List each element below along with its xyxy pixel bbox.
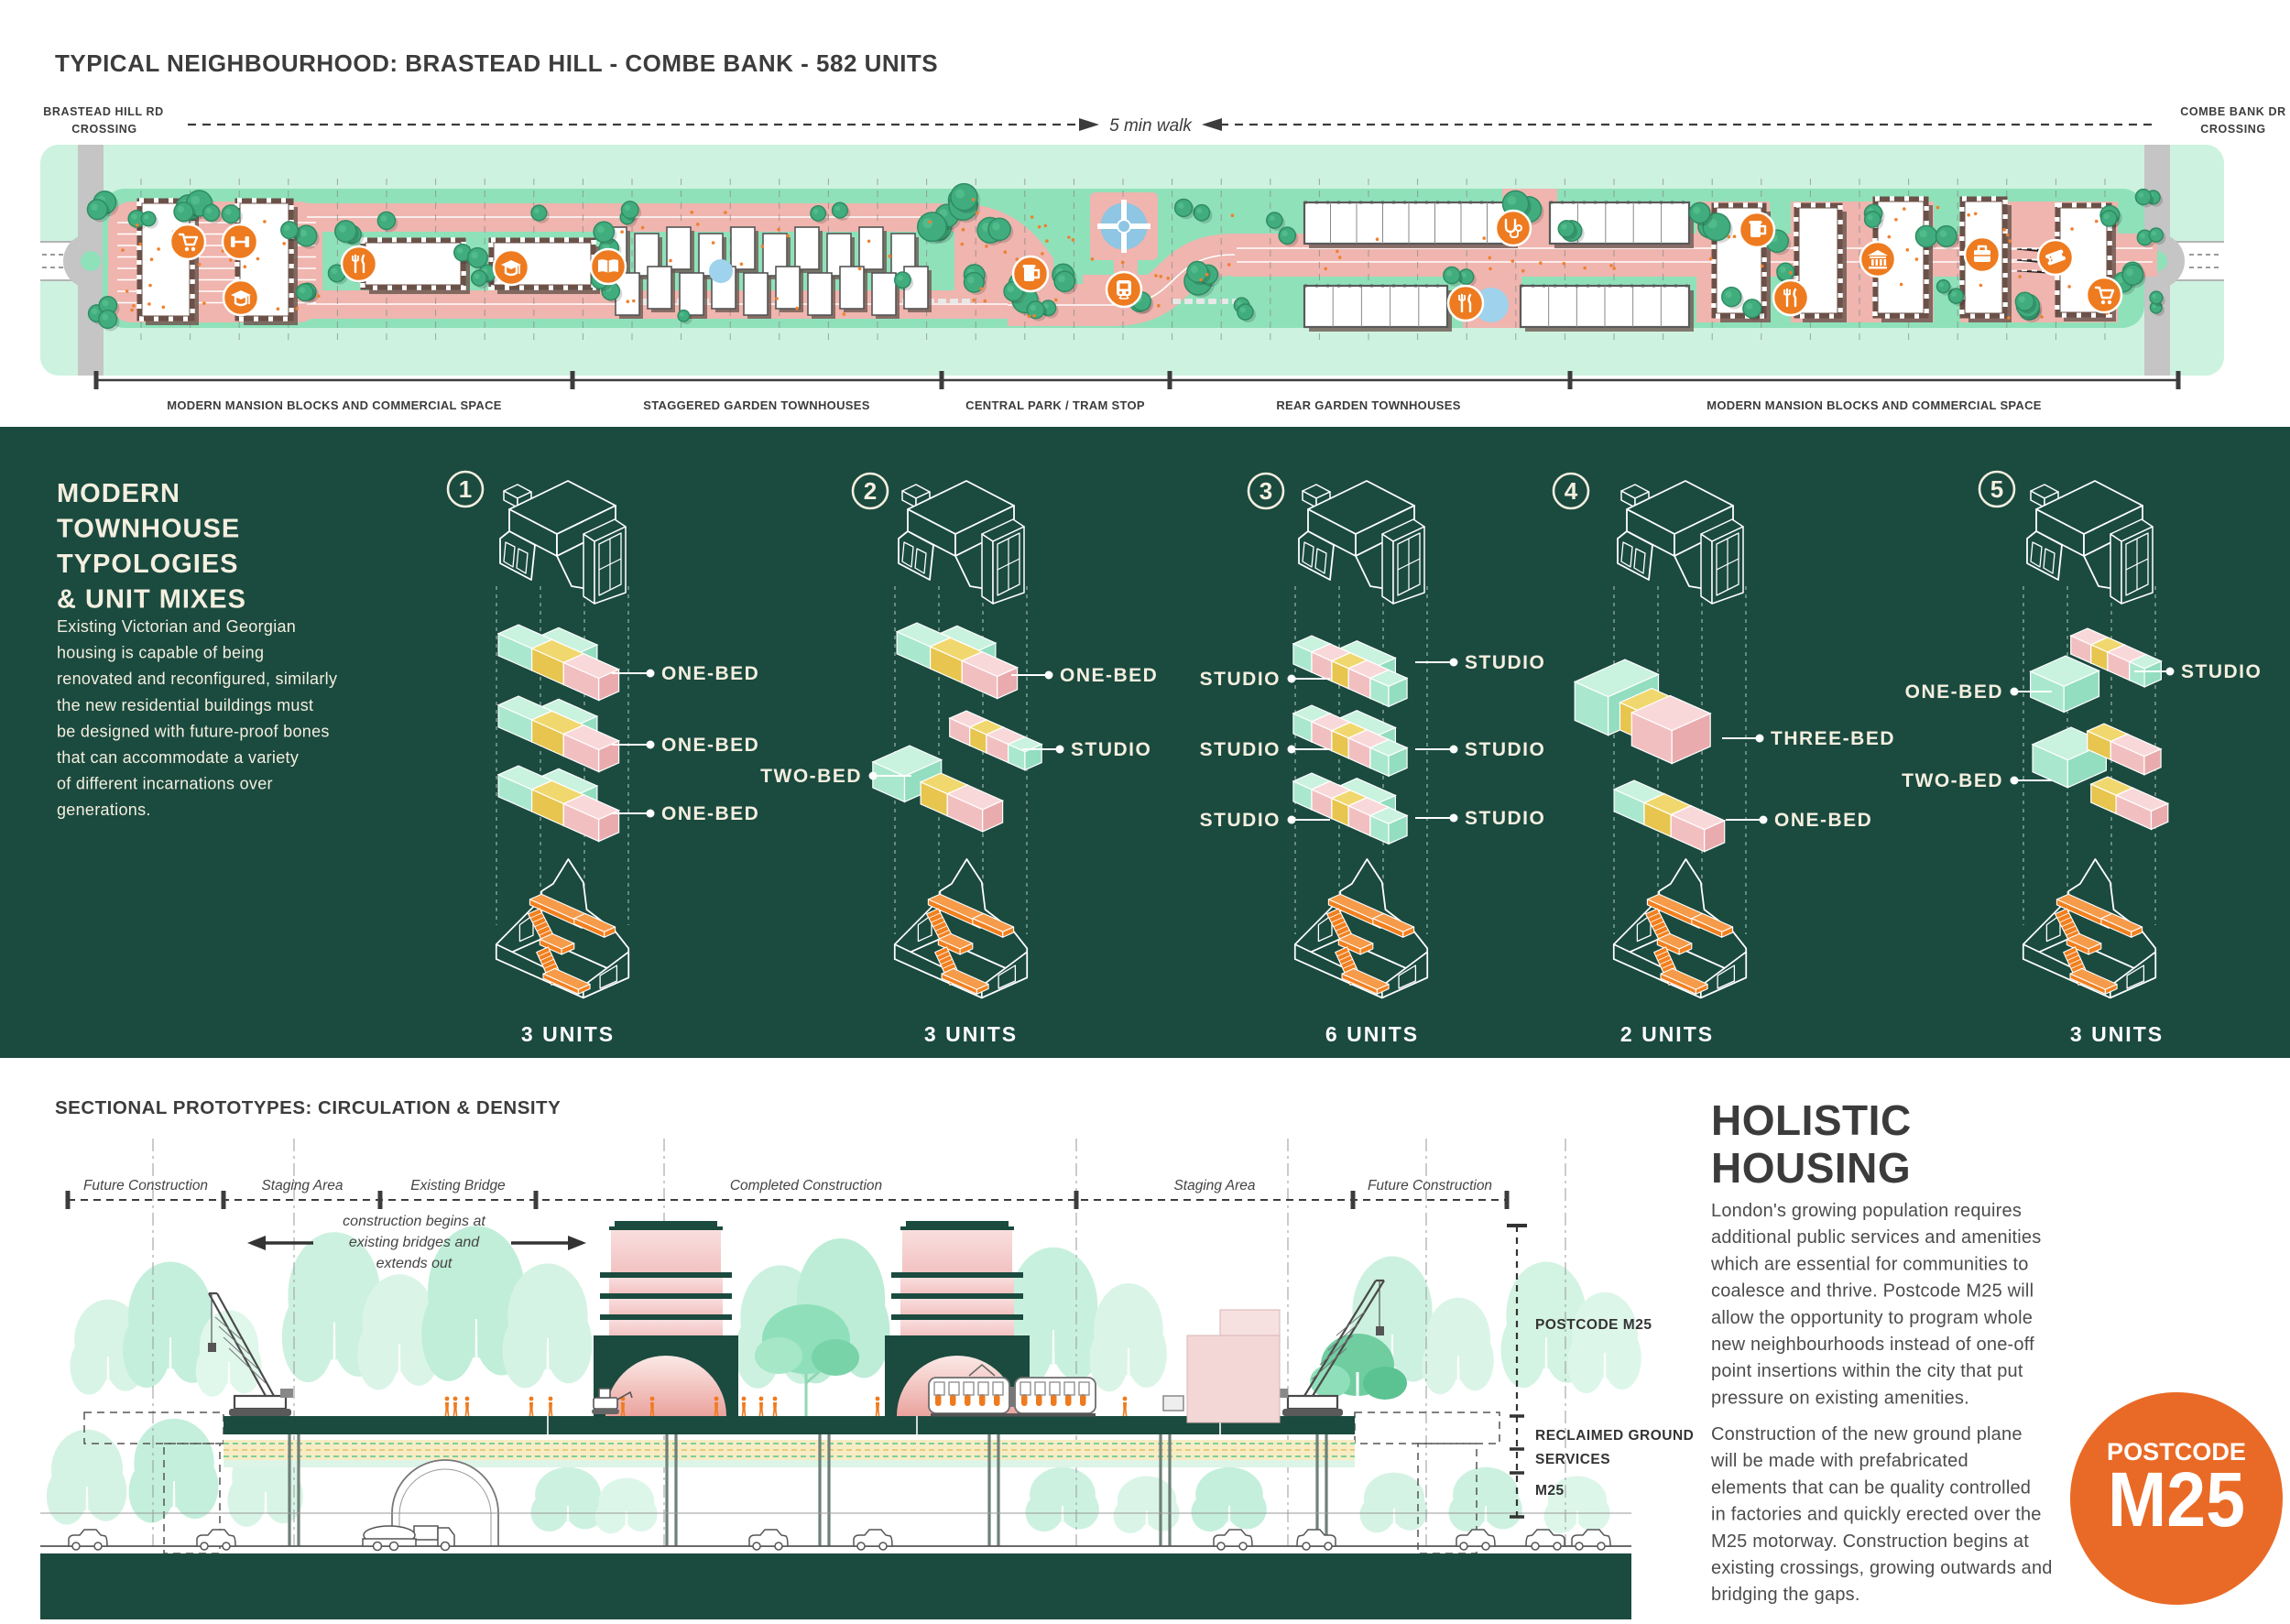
svg-text:STUDIO: STUDIO [1200, 739, 1281, 760]
svg-text:that can accommodate a variety: that can accommodate a variety [57, 748, 299, 767]
svg-text:Completed Construction: Completed Construction [730, 1178, 882, 1193]
svg-text:HOUSING: HOUSING [1711, 1144, 1911, 1192]
svg-text:STUDIO: STUDIO [1200, 810, 1281, 831]
svg-text:CROSSING: CROSSING [2200, 123, 2265, 136]
svg-text:existing crossings, growing ou: existing crossings, growing outwards and [1711, 1558, 2053, 1578]
svg-text:BRASTEAD HILL RD: BRASTEAD HILL RD [43, 105, 164, 118]
svg-text:renovated and reconfigured, si: renovated and reconfigured, similarly [57, 670, 337, 688]
svg-text:5: 5 [1990, 475, 2003, 503]
svg-text:existing bridges and: existing bridges and [349, 1235, 480, 1250]
svg-text:2: 2 [864, 477, 877, 505]
svg-text:CROSSING: CROSSING [71, 123, 136, 136]
svg-text:additional public services and: additional public services and amenities [1711, 1227, 2041, 1248]
svg-text:STUDIO: STUDIO [1465, 652, 1545, 673]
svg-text:5 min walk: 5 min walk [1109, 116, 1193, 136]
svg-text:generations.: generations. [57, 801, 151, 819]
svg-text:of different incarnations over: of different incarnations over [57, 775, 273, 793]
svg-text:TYPICAL NEIGHBOURHOOD: BRASTEA: TYPICAL NEIGHBOURHOOD: BRASTEAD HILL - C… [55, 49, 938, 77]
svg-text:6 UNITS: 6 UNITS [1325, 1022, 1419, 1046]
svg-text:housing is capable of being: housing is capable of being [57, 644, 264, 662]
svg-text:point insertions within the ci: point insertions within the city that pu… [1711, 1361, 2023, 1381]
svg-text:THREE-BED: THREE-BED [1771, 728, 1895, 749]
svg-text:TWO-BED: TWO-BED [760, 766, 862, 787]
svg-text:M25: M25 [2108, 1456, 2245, 1542]
svg-text:London's growing population re: London's growing population requires [1711, 1201, 2022, 1221]
svg-text:REAR GARDEN TOWNHOUSES: REAR GARDEN TOWNHOUSES [1276, 398, 1460, 412]
svg-text:Staging Area: Staging Area [261, 1178, 343, 1193]
svg-text:coalesce and thrive. Postcode: coalesce and thrive. Postcode M25 will [1711, 1281, 2034, 1302]
svg-text:construction begins at: construction begins at [343, 1214, 485, 1229]
svg-text:MODERN MANSION BLOCKS AND COMM: MODERN MANSION BLOCKS AND COMMERCIAL SPA… [167, 398, 502, 412]
svg-text:4: 4 [1565, 477, 1578, 505]
svg-text:3 UNITS: 3 UNITS [924, 1022, 1018, 1046]
svg-text:STUDIO: STUDIO [1071, 739, 1151, 760]
svg-text:ONE-BED: ONE-BED [1060, 665, 1158, 686]
svg-text:M25 motorway. Construction be: M25 motorway. Construction begins at [1711, 1531, 2029, 1552]
svg-text:elements that can be quality c: elements that can be quality controlled [1711, 1477, 2031, 1498]
svg-text:STAGGERED GARDEN TOWNHOUSES: STAGGERED GARDEN TOWNHOUSES [643, 398, 869, 412]
svg-text:Staging Area: Staging Area [1173, 1178, 1255, 1193]
svg-text:3: 3 [1259, 477, 1272, 505]
svg-text:SERVICES: SERVICES [1535, 1452, 1610, 1467]
svg-text:MODERN: MODERN [57, 479, 180, 508]
svg-text:RECLAIMED GROUND: RECLAIMED GROUND [1535, 1428, 1694, 1444]
svg-text:ONE-BED: ONE-BED [1905, 681, 2003, 703]
svg-text:the new residential buildings: the new residential buildings must [57, 696, 313, 714]
svg-text:TYPOLOGIES: TYPOLOGIES [57, 550, 239, 579]
svg-text:SECTIONAL PROTOTYPES: CIRCULAT: SECTIONAL PROTOTYPES: CIRCULATION & DENS… [55, 1097, 561, 1118]
svg-text:new neighbourhoods instead of: new neighbourhoods instead of one-off [1711, 1335, 2034, 1355]
svg-text:STUDIO: STUDIO [1200, 669, 1281, 690]
svg-text:which are essential for commun: which are essential for communities to [1710, 1254, 2029, 1274]
svg-text:STUDIO: STUDIO [1465, 739, 1545, 760]
svg-text:3 UNITS: 3 UNITS [521, 1022, 615, 1046]
svg-text:TWO-BED: TWO-BED [1902, 770, 2003, 791]
svg-text:allow the opportunity to progr: allow the opportunity to program whole [1711, 1308, 2033, 1328]
svg-text:STUDIO: STUDIO [2181, 661, 2262, 682]
svg-text:ONE-BED: ONE-BED [661, 735, 759, 756]
svg-text:2 UNITS: 2 UNITS [1620, 1022, 1714, 1046]
svg-text:ONE-BED: ONE-BED [661, 803, 759, 824]
svg-text:ONE-BED: ONE-BED [661, 663, 759, 684]
svg-text:pressure on existing amenities: pressure on existing amenities. [1711, 1388, 1969, 1408]
svg-text:CENTRAL PARK / TRAM STOP: CENTRAL PARK / TRAM STOP [965, 398, 1145, 412]
svg-text:POSTCODE M25: POSTCODE M25 [1535, 1317, 1652, 1333]
svg-text:be designed with future-proof: be designed with future-proof bones [57, 722, 330, 740]
svg-text:in factories and quickly erect: in factories and quickly erected over th… [1711, 1505, 2042, 1525]
svg-text:Future Construction: Future Construction [83, 1178, 208, 1193]
svg-text:& UNIT MIXES: & UNIT MIXES [57, 585, 246, 615]
svg-text:3 UNITS: 3 UNITS [2070, 1022, 2164, 1046]
svg-text:Existing Bridge: Existing Bridge [410, 1178, 506, 1193]
svg-text:1: 1 [459, 475, 472, 503]
svg-text:M25: M25 [1535, 1483, 1565, 1499]
svg-text:will be made with prefabricate: will be made with prefabricated [1710, 1451, 1968, 1471]
svg-text:Future Construction: Future Construction [1368, 1178, 1492, 1193]
svg-text:extends out: extends out [376, 1256, 453, 1271]
svg-text:STUDIO: STUDIO [1465, 808, 1545, 829]
svg-text:COMBE BANK DR: COMBE BANK DR [2180, 105, 2285, 118]
svg-text:TOWNHOUSE: TOWNHOUSE [57, 515, 240, 544]
svg-text:ONE-BED: ONE-BED [1774, 810, 1872, 831]
svg-text:MODERN MANSION BLOCKS AND COMM: MODERN MANSION BLOCKS AND COMMERCIAL SPA… [1707, 398, 2042, 412]
svg-text:Construction of the new ground: Construction of the new ground plane [1711, 1424, 2023, 1444]
svg-text:HOLISTIC: HOLISTIC [1711, 1096, 1912, 1144]
svg-text:Existing Victorian and Georgia: Existing Victorian and Georgian [57, 617, 296, 636]
svg-text:bridging the gaps.: bridging the gaps. [1711, 1585, 1860, 1605]
